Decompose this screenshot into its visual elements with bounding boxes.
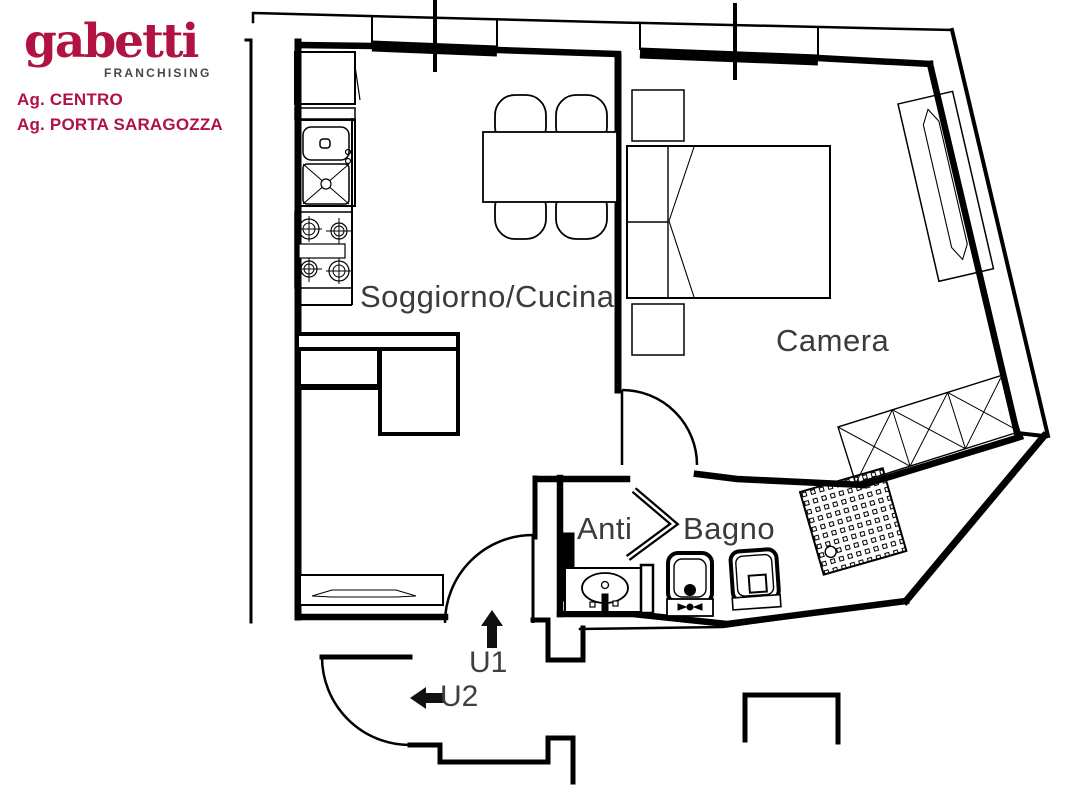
- door-u2-stairs: [322, 657, 410, 745]
- dining-table: [483, 132, 617, 202]
- room-label-camera: Camera: [776, 323, 889, 359]
- room-label-anti: Anti: [577, 511, 632, 547]
- agency-line-2: Ag. PORTA SARAGOZZA: [17, 115, 223, 135]
- nightstand: [632, 90, 684, 141]
- l-shaped-sofa: [297, 334, 458, 434]
- unit-label-u2: U2: [440, 680, 478, 714]
- kitchen-block: [295, 52, 360, 305]
- outer-walls: [246, 13, 1048, 629]
- window-bedroom: [640, 53, 818, 60]
- fridge: [295, 52, 355, 104]
- radiator-livingroom: [300, 575, 443, 605]
- logo-subtitle: FRANCHISING: [104, 66, 212, 80]
- door-u1-entrance: [445, 535, 533, 623]
- room-label-bagno: Bagno: [683, 511, 775, 547]
- left-arrow-icon: [410, 687, 444, 709]
- unit-label-u1: U1: [469, 646, 507, 680]
- door-bathroom-folding: [628, 490, 674, 558]
- gabetti-logo: gabetti: [24, 18, 197, 65]
- door-bedroom: [622, 390, 697, 465]
- bidet: [667, 553, 713, 616]
- dining-set: [483, 95, 617, 239]
- room-label-soggiorno-cucina: Soggiorno/Cucina: [360, 279, 614, 315]
- partition-stub: [641, 565, 653, 613]
- kitchen-sink: [297, 120, 355, 206]
- nightstand: [632, 304, 684, 355]
- double-bed: [627, 146, 830, 298]
- windows: [372, 0, 818, 80]
- toilet: [729, 549, 781, 610]
- up-arrow-icon: [481, 610, 503, 648]
- stove: [295, 212, 352, 288]
- agency-line-1: Ag. CENTRO: [17, 90, 123, 110]
- washbasin: [565, 568, 645, 612]
